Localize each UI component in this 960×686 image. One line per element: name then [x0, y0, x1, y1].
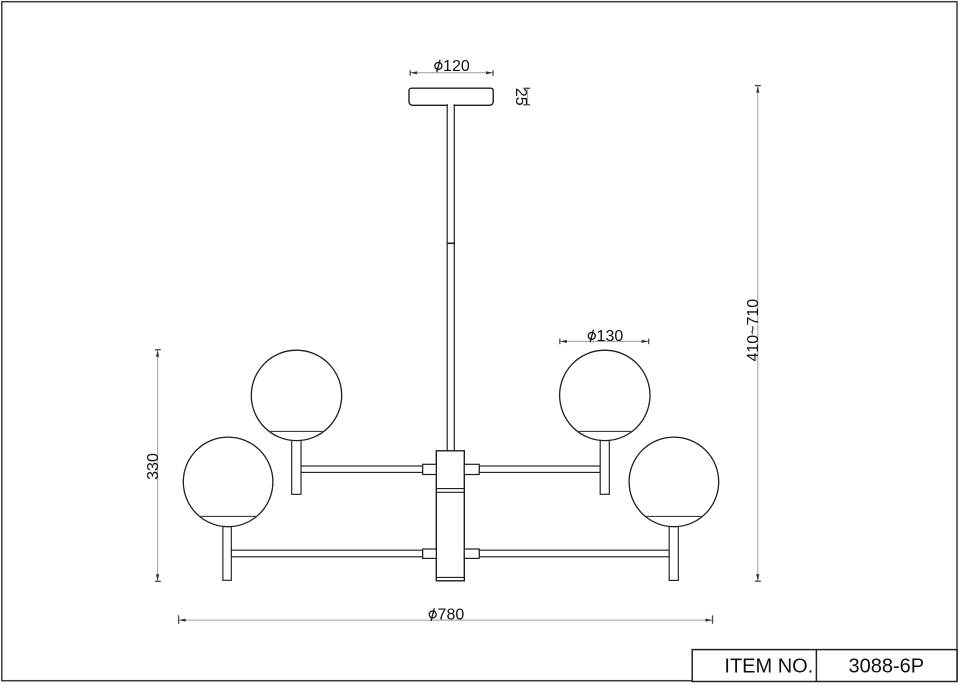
- svg-text:120: 120: [443, 58, 470, 75]
- svg-text:130: 130: [597, 328, 624, 345]
- svg-text:780: 780: [438, 607, 465, 624]
- svg-text:3088-6P: 3088-6P: [848, 655, 924, 677]
- svg-text:25: 25: [512, 88, 529, 106]
- svg-text:ITEM NO.: ITEM NO.: [724, 655, 813, 677]
- svg-text:410~710: 410~710: [745, 299, 762, 362]
- svg-text:330: 330: [145, 453, 162, 480]
